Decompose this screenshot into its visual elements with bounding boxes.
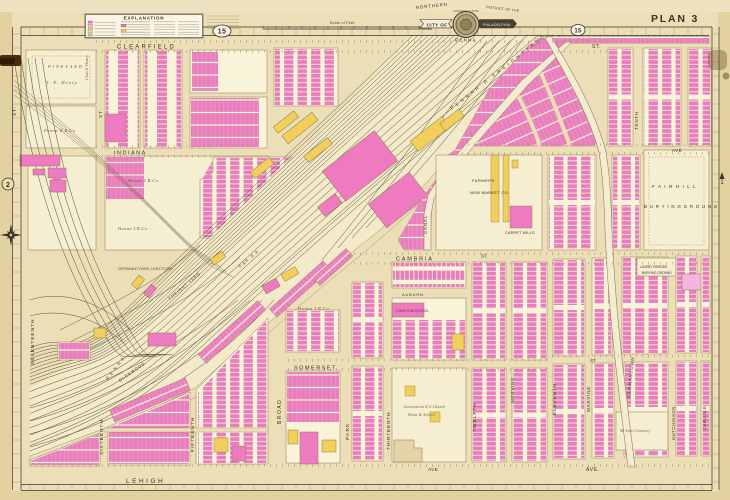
svg-text:2: 2 — [6, 182, 10, 189]
svg-text:PENNA: PENNA — [455, 38, 477, 43]
svg-text:TWELFTH: TWELFTH — [472, 402, 478, 432]
svg-text:CLEARFIELD: CLEARFIELD — [117, 45, 176, 51]
svg-text:F A I R H I L L: F A I R H I L L — [652, 184, 697, 190]
svg-text:MARVINE: MARVINE — [586, 386, 591, 412]
svg-text:CAMBRIA: CAMBRIA — [396, 257, 434, 263]
svg-text:Honan I.R.Co: Honan I.R.Co — [127, 178, 159, 183]
svg-text:PARK: PARK — [345, 422, 351, 440]
svg-text:Honan I.R.Co: Honan I.R.Co — [297, 306, 329, 311]
svg-text:B U R Y I N G G R O U N D: B U R Y I N G G R O U N D — [644, 204, 718, 209]
svg-text:ST.: ST. — [481, 254, 488, 259]
svg-text:SOMERSET: SOMERSET — [294, 366, 337, 372]
svg-text:SURVEYED & PUBd: SURVEYED & PUBd — [453, 9, 479, 13]
svg-text:Honan I.R.Co: Honan I.R.Co — [117, 226, 148, 231]
svg-text:T. E. Henry: T. E. Henry — [46, 80, 78, 85]
svg-text:15: 15 — [574, 29, 582, 35]
svg-text:ST.: ST. — [590, 358, 597, 363]
svg-text:CANAL: CANAL — [423, 215, 428, 234]
svg-text:ELEVENTH: ELEVENTH — [552, 383, 558, 415]
svg-text:CARLISLE: CARLISLE — [702, 406, 707, 430]
svg-text:AVE: AVE — [672, 148, 682, 153]
svg-text:ST.: ST. — [12, 106, 17, 116]
svg-text:Chas E Henry: Chas E Henry — [85, 55, 89, 80]
svg-text:EXPLANATION: EXPLANATION — [124, 16, 165, 21]
svg-text:Mt Sinai Cemetery: Mt Sinai Cemetery — [619, 429, 651, 433]
svg-text:AVE.: AVE. — [428, 467, 440, 472]
svg-text:NEW MARKET CO.: NEW MARKET CO. — [470, 190, 509, 195]
svg-text:Incarnation R.C.Church: Incarnation R.C.Church — [403, 405, 445, 409]
svg-text:SIXTEENTH: SIXTEENTH — [99, 419, 105, 455]
svg-text:LAUREL FRIENDS: LAUREL FRIENDS — [640, 265, 667, 269]
svg-text:P I N E Y A R D: P I N E Y A R D — [47, 64, 82, 69]
svg-text:FARMERS: FARMERS — [472, 178, 495, 183]
svg-text:ST.: ST. — [98, 108, 103, 118]
svg-text:Penna R.R.Co: Penna R.R.Co — [43, 128, 76, 133]
svg-text:AVE.: AVE. — [586, 467, 600, 473]
svg-text:J.SIMS PUB.SCHOOL: J.SIMS PUB.SCHOOL — [395, 309, 429, 313]
svg-text:GERMANTOWN JUNCTION: GERMANTOWN JUNCTION — [118, 267, 172, 271]
svg-text:PHILADELPHIA: PHILADELPHIA — [483, 23, 511, 27]
svg-text:INDIANA: INDIANA — [114, 151, 147, 157]
svg-text:CITY OF: CITY OF — [427, 22, 448, 27]
svg-text:LEHIGH: LEHIGH — [126, 478, 165, 485]
svg-text:FIFTEENTH: FIFTEENTH — [190, 417, 196, 452]
svg-text:HUTCHINSON: HUTCHINSON — [671, 406, 676, 440]
svg-text:SEVENTEENTH: SEVENTEENTH — [30, 319, 36, 365]
svg-text:CARPET MILLS: CARPET MILLS — [505, 231, 535, 235]
svg-text:ST.: ST. — [592, 44, 601, 50]
svg-text:TENTH: TENTH — [634, 111, 639, 130]
svg-text:15: 15 — [218, 29, 227, 36]
svg-text:AUBURN: AUBURN — [402, 292, 424, 297]
svg-text:PLAN 3: PLAN 3 — [651, 13, 699, 25]
svg-text:Scale of Feet: Scale of Feet — [330, 21, 355, 25]
svg-text:Home & School: Home & School — [407, 413, 435, 417]
svg-text:MERVINE: MERVINE — [510, 377, 515, 403]
svg-text:BURYING GROUND: BURYING GROUND — [642, 271, 672, 275]
svg-text:BROAD: BROAD — [277, 399, 283, 424]
svg-text:THIRTEENTH: THIRTEENTH — [386, 412, 392, 450]
